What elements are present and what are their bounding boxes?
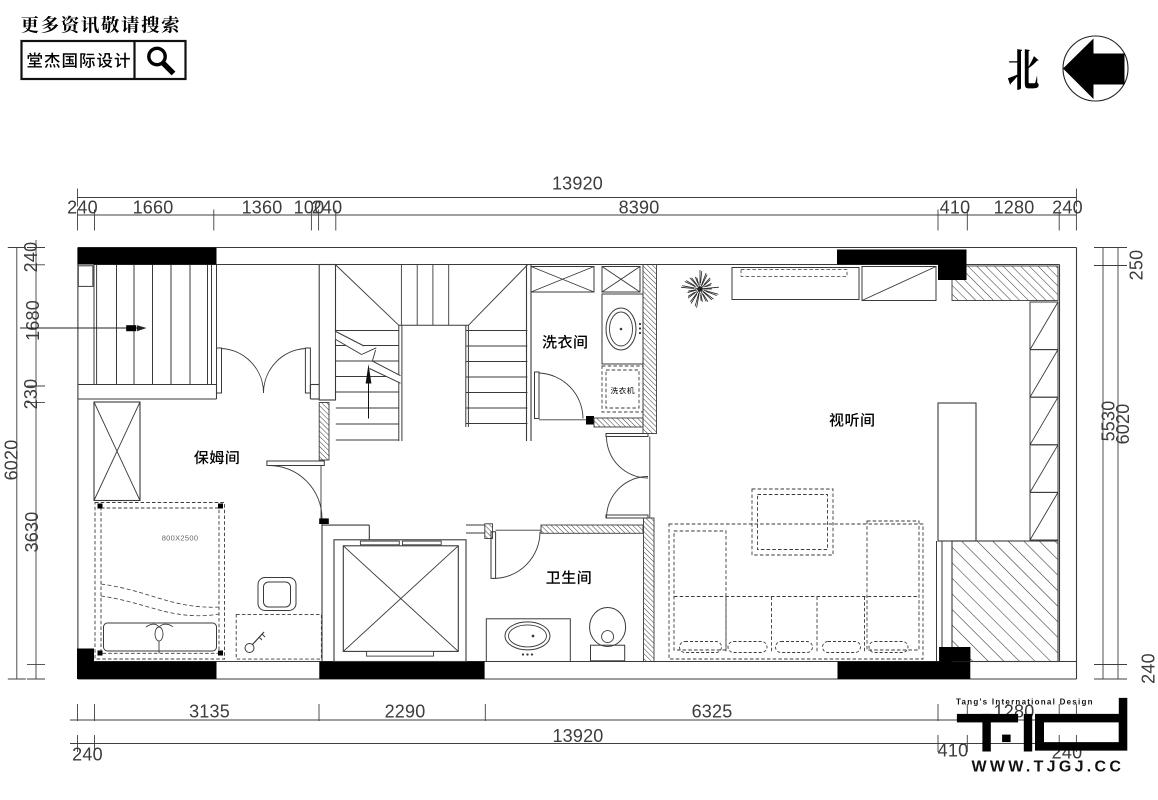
svg-text:410: 410 — [940, 198, 971, 218]
svg-text:240: 240 — [1139, 653, 1158, 684]
svg-text:240: 240 — [1052, 198, 1083, 218]
svg-text:240: 240 — [72, 745, 103, 765]
svg-text:800X2500: 800X2500 — [162, 534, 199, 543]
svg-text:1360: 1360 — [242, 198, 283, 218]
svg-text:230: 230 — [21, 379, 41, 410]
svg-text:6020: 6020 — [1113, 404, 1133, 445]
svg-text:250: 250 — [1127, 250, 1147, 281]
svg-text:3630: 3630 — [22, 512, 42, 553]
svg-text:1280: 1280 — [994, 198, 1035, 218]
svg-text:410: 410 — [938, 741, 969, 761]
svg-text:1680: 1680 — [23, 300, 43, 341]
svg-text:1660: 1660 — [133, 198, 174, 218]
svg-text:240: 240 — [67, 198, 98, 218]
svg-text:13920: 13920 — [552, 174, 603, 194]
svg-text:13920: 13920 — [552, 726, 603, 746]
svg-text:2290: 2290 — [385, 702, 426, 722]
svg-text:240: 240 — [312, 198, 343, 218]
svg-text:240: 240 — [21, 242, 41, 273]
svg-text:6325: 6325 — [692, 702, 733, 722]
svg-text:WWW.TJGJ.CC: WWW.TJGJ.CC — [972, 759, 1125, 776]
svg-text:8390: 8390 — [619, 198, 660, 218]
svg-text:Tang's International Design: Tang's International Design — [956, 698, 1094, 707]
svg-text:3135: 3135 — [189, 702, 230, 722]
svg-text:6020: 6020 — [2, 440, 22, 481]
